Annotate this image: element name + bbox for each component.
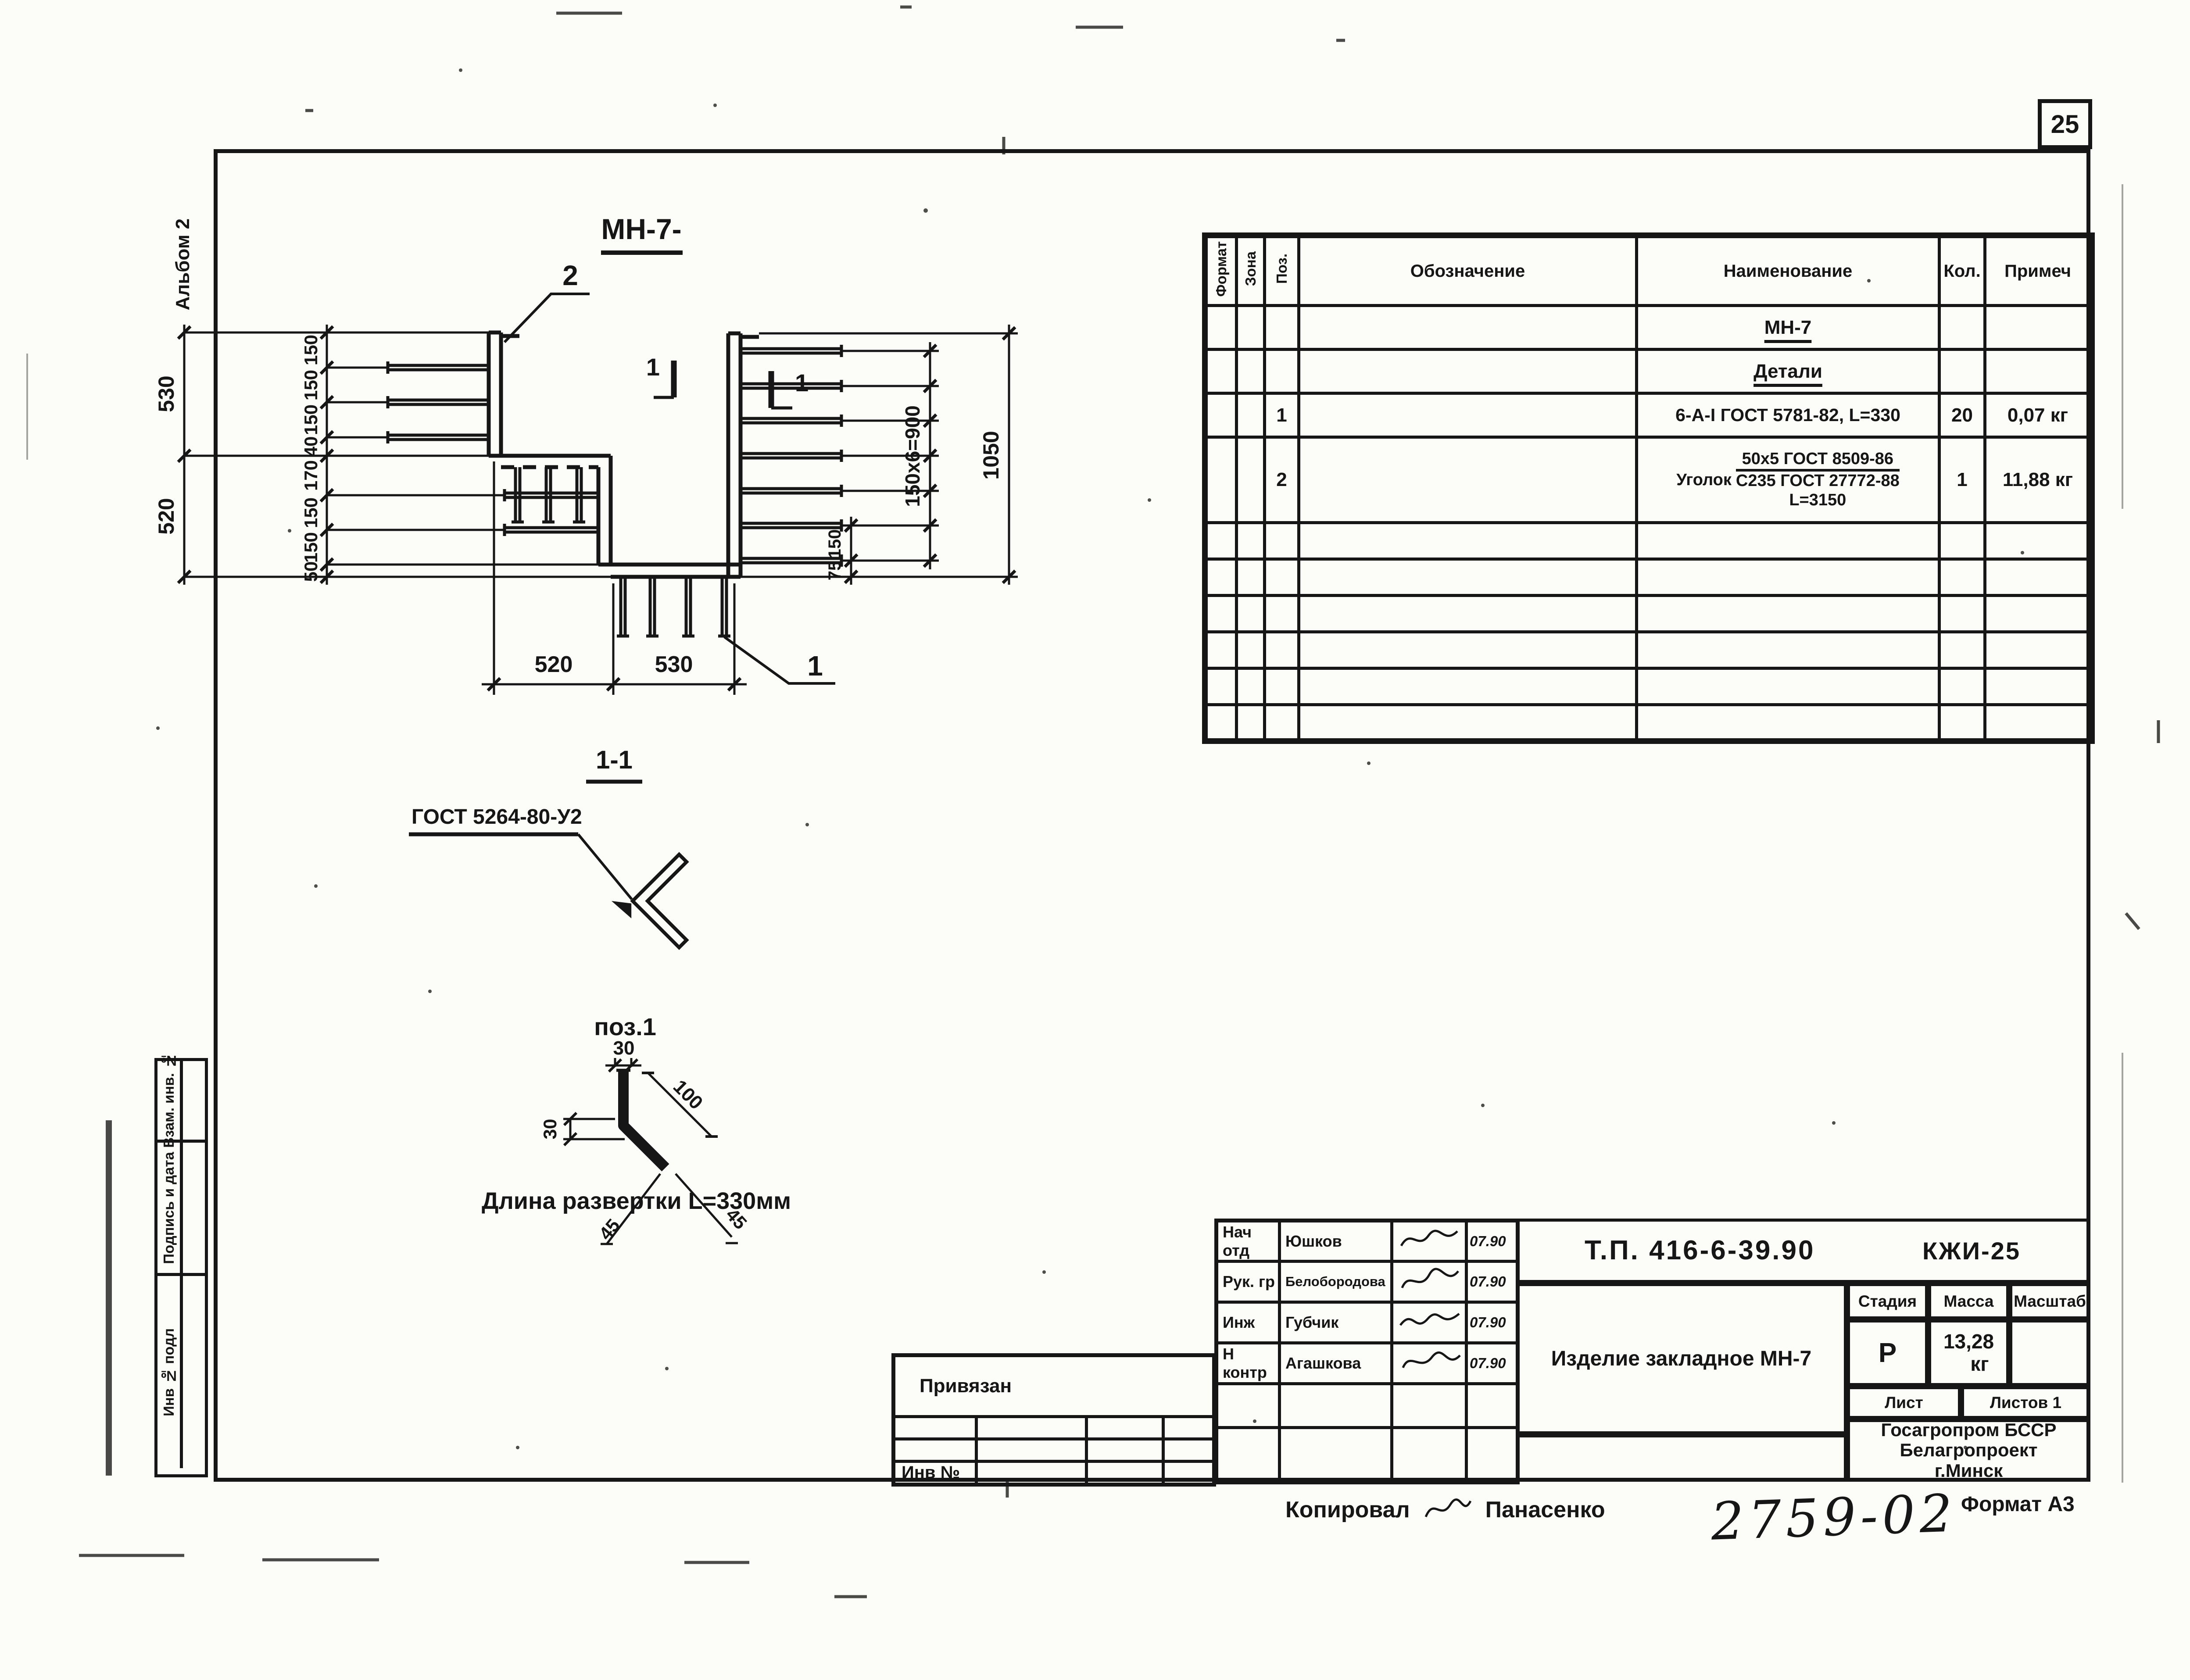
margin-row-vzam: Взам. инв. №	[157, 1061, 205, 1143]
sheet-label: Лист	[1847, 1386, 1961, 1419]
document-number: 2759-02	[1710, 1483, 1958, 1551]
sign-date: 07.90	[1467, 1343, 1518, 1384]
signature-squiggle	[1398, 1308, 1464, 1334]
sign-name: Губчик	[1280, 1302, 1392, 1343]
stage-mass-scale-block: Стадия Масса Масштаб Р 13,28 кг Лист Лис…	[1847, 1283, 2090, 1482]
spec-row-group2: Детали	[1205, 350, 2092, 393]
scale-header: Масштаб	[2009, 1283, 2090, 1319]
mass-header: Масса	[1928, 1283, 2009, 1319]
spec-row2-prefix: Уголок	[1676, 471, 1732, 490]
copied-label: Копировал	[1285, 1497, 1410, 1523]
sign-name: Агашкова	[1280, 1343, 1392, 1384]
mass-value: 13,28 кг	[1928, 1319, 2009, 1386]
doc-code-cell: Т.П. 416-6-39.90 КЖИ-25	[1516, 1219, 2090, 1283]
signature-cell	[1392, 1221, 1467, 1262]
stage-value: Р	[1847, 1319, 1928, 1386]
spec-row1-pos: 1	[1265, 393, 1299, 437]
sign-role: Инж	[1217, 1302, 1280, 1343]
spec-header-qty: Кол.	[1940, 236, 1985, 306]
product-empty-cell	[1516, 1434, 1847, 1482]
margin-row-podpis: Подпись и дата	[157, 1143, 205, 1276]
sign-date: 07.90	[1467, 1221, 1518, 1262]
spec-row2-note: 11,88 кг	[1985, 437, 2092, 523]
signature-squiggle	[1398, 1267, 1464, 1293]
sign-row-nachotd: Нач отд Юшков 07.90	[1217, 1221, 1518, 1262]
spec-row2-steel-top: 50х5 ГОСТ 8509-86	[1736, 450, 1900, 472]
sign-row-nkontr: Н контр Агашкова 07.90	[1217, 1343, 1518, 1384]
margin-label-vzam: Взам. инв. №	[161, 1053, 177, 1148]
signature-table: Нач отд Юшков 07.90 Рук. гр Белобородова…	[1214, 1219, 1520, 1484]
sign-date: 07.90	[1467, 1262, 1518, 1302]
spec-row2-pos: 2	[1265, 437, 1299, 523]
margin-label-inv: Инв № подл	[161, 1328, 177, 1416]
sign-role: Нач отд	[1217, 1221, 1280, 1262]
album-label: Альбом 2	[172, 218, 194, 311]
page-number: 25	[2051, 110, 2079, 139]
sign-row-inzh: Инж Губчик 07.90	[1217, 1302, 1518, 1343]
dim-530-left: 530	[154, 375, 179, 412]
inv-number-label: Инв №	[894, 1462, 977, 1485]
spec-row2-length: L=3150	[1736, 491, 1900, 510]
signature-cell	[1392, 1302, 1467, 1343]
drawing-sheet: МН-7- 530 520 150 150 150 40 170 150 150…	[0, 0, 2190, 1680]
margin-label-podpis: Подпись и дата	[161, 1152, 177, 1264]
album-label-wrap: Альбом 2	[172, 197, 194, 332]
mass-number: 13,28	[1943, 1330, 1994, 1353]
sign-role: Н контр	[1217, 1343, 1280, 1384]
spec-row1-qty: 20	[1940, 393, 1985, 437]
spec-row2-name: Уголок 50х5 ГОСТ 8509-86 С235 ГОСТ 27772…	[1638, 450, 1938, 510]
margin-strip: Взам. инв. № Подпись и дата Инв № подл	[154, 1058, 208, 1477]
sheets-label: Листов 1	[1961, 1386, 2090, 1419]
dim-520-left: 520	[154, 498, 179, 534]
sign-name: Юшков	[1280, 1221, 1392, 1262]
mass-unit: кг	[1948, 1353, 1989, 1375]
organization-cell: Госагропром БССР Белагропроект г.Минск	[1847, 1419, 2090, 1482]
doc-code: Т.П. 416-6-39.90	[1585, 1235, 1815, 1266]
binding-title: Привязан	[894, 1355, 1214, 1417]
product-name: Изделие закладное МН-7	[1551, 1347, 1811, 1371]
spec-header-name: Наименование	[1637, 236, 1940, 306]
spec-row2-qty: 1	[1940, 437, 1985, 523]
spec-row1-note: 0,07 кг	[1985, 393, 2092, 437]
spec-row-1: 1 6-А-I ГОСТ 5781-82, L=330 20 0,07 кг	[1205, 393, 2092, 437]
spec-row1-name: 6-А-I ГОСТ 5781-82, L=330	[1637, 393, 1940, 437]
signature-cell	[1392, 1262, 1467, 1302]
spec-group-detali: Детали	[1753, 361, 1822, 382]
copied-by: Панасенко	[1485, 1497, 1605, 1523]
spec-header-designation: Обозначение	[1299, 236, 1637, 306]
scale-value	[2009, 1319, 2090, 1386]
spec-row-group1: МН-7	[1205, 306, 2092, 350]
series-code: КЖИ-25	[1922, 1237, 2021, 1265]
sign-name: Белобородова	[1280, 1262, 1392, 1302]
org-line-1: Госагропром БССР	[1881, 1420, 2056, 1440]
spec-row2-steel-bottom: С235 ГОСТ 27772-88	[1736, 472, 1900, 491]
sign-row-rukgr: Рук. гр Белобородова 07.90	[1217, 1262, 1518, 1302]
signature-squiggle	[1398, 1226, 1464, 1252]
spec-header-format: Формат	[1213, 241, 1230, 297]
binding-table: Привязан Инв №	[891, 1353, 1216, 1487]
spec-table: Формат Зона Поз. Обозначение Наименовани…	[1202, 232, 2095, 744]
sign-role: Рук. гр	[1217, 1262, 1280, 1302]
title-block: Нач отд Юшков 07.90 Рук. гр Белобородова…	[1214, 1219, 2090, 1482]
page-number-box: 25	[2038, 99, 2092, 149]
format-note: Формат А3	[1961, 1492, 2075, 1516]
spec-group-mn7: МН-7	[1764, 317, 1812, 338]
signature-cell	[1392, 1343, 1467, 1384]
org-line-2: Белагропроект	[1900, 1440, 2037, 1460]
copier-signature-squiggle	[1421, 1495, 1474, 1523]
product-cell: Изделие закладное МН-7	[1516, 1283, 1847, 1434]
spec-header-zone: Зона	[1242, 251, 1259, 286]
margin-row-inv: Инв № подл	[157, 1276, 205, 1468]
stage-header: Стадия	[1847, 1283, 1928, 1319]
sign-date: 07.90	[1467, 1302, 1518, 1343]
org-line-3: г.Минск	[1935, 1461, 2003, 1481]
spec-row-2: 2 Уголок 50х5 ГОСТ 8509-86 С235 ГОСТ 277…	[1205, 437, 2092, 523]
copied-line: Копировал Панасенко	[1285, 1495, 1605, 1523]
spec-header-note: Примеч	[1985, 236, 2092, 306]
spec-header-pos: Поз.	[1274, 254, 1290, 284]
signature-squiggle	[1398, 1348, 1464, 1375]
